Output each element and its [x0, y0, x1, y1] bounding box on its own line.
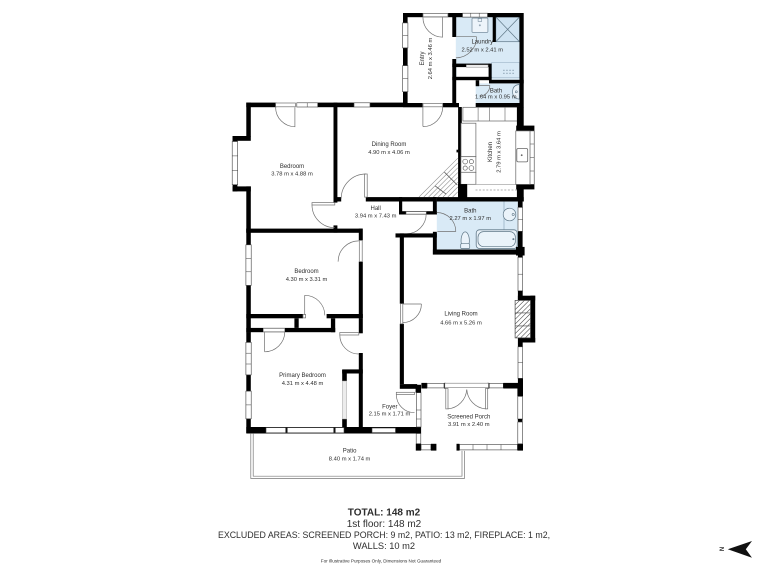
svg-text:4.30 m x 3.31 m: 4.30 m x 3.31 m: [286, 277, 328, 283]
svg-text:Bedroom: Bedroom: [280, 164, 304, 170]
svg-text:2.15 m x 1.71 m: 2.15 m x 1.71 m: [369, 412, 411, 418]
svg-text:2.52 m x 2.41 m: 2.52 m x 2.41 m: [462, 48, 504, 54]
svg-text:Foyer: Foyer: [382, 404, 397, 410]
svg-text:N: N: [720, 547, 726, 551]
svg-text:Patio: Patio: [343, 448, 357, 454]
svg-text:WALLS: 10 m2: WALLS: 10 m2: [353, 541, 415, 551]
svg-text:1st floor: 148 m2: 1st floor: 148 m2: [347, 519, 422, 530]
svg-text:2.64 m x 3.46 m: 2.64 m x 3.46 m: [428, 38, 434, 80]
svg-text:3.78 m x 4.88 m: 3.78 m x 4.88 m: [271, 172, 313, 178]
svg-text:4.66 m x 5.26 m: 4.66 m x 5.26 m: [440, 321, 482, 327]
svg-text:Entry: Entry: [420, 51, 426, 65]
svg-text:EXCLUDED AREAS: SCREENED PORCH: EXCLUDED AREAS: SCREENED PORCH: 9 m2, PA…: [218, 530, 550, 540]
svg-text:3.94 m x 7.43 m: 3.94 m x 7.43 m: [355, 214, 397, 220]
svg-text:Screened Porch: Screened Porch: [447, 415, 490, 421]
svg-text:2.79 m x 3.64 m: 2.79 m x 3.64 m: [497, 131, 503, 173]
svg-text:4.90 m x 4.06 m: 4.90 m x 4.06 m: [368, 150, 410, 156]
svg-text:1.64 m x 0.95 m: 1.64 m x 0.95 m: [475, 95, 517, 101]
svg-text:TOTAL: 148 m2: TOTAL: 148 m2: [348, 508, 421, 519]
svg-text:Bath: Bath: [490, 88, 502, 94]
svg-text:Primary Bedroom: Primary Bedroom: [279, 373, 326, 379]
svg-text:4.31 m x 4.48 m: 4.31 m x 4.48 m: [282, 381, 324, 387]
svg-text:Bedroom: Bedroom: [294, 269, 318, 275]
svg-text:For Illustrative Purposes Only: For Illustrative Purposes Only, Dimensio…: [321, 559, 442, 564]
svg-text:Living Room: Living Room: [444, 312, 477, 318]
svg-text:Kitchen: Kitchen: [488, 142, 494, 162]
svg-text:3.91 m x 2.40 m: 3.91 m x 2.40 m: [448, 422, 490, 428]
svg-text:8.40 m x 1.74 m: 8.40 m x 1.74 m: [329, 457, 371, 463]
svg-text:Bath: Bath: [464, 209, 476, 215]
svg-text:Laundry: Laundry: [471, 39, 493, 45]
svg-text:Hall: Hall: [371, 206, 381, 212]
svg-text:2.27 m x 1.97 m: 2.27 m x 1.97 m: [450, 216, 492, 222]
svg-text:Dining Room: Dining Room: [372, 142, 407, 148]
